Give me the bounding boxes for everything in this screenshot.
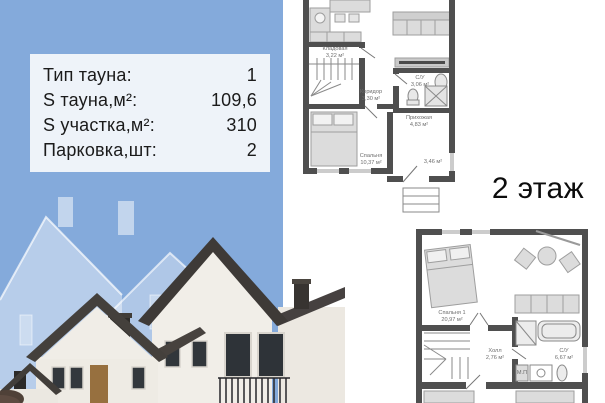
chair	[349, 14, 359, 22]
room-label-kladovaya: Кладовая3,22 м²	[322, 45, 347, 58]
bed	[425, 245, 478, 308]
toilet-tank	[407, 100, 419, 105]
info-row-lot-area: S участка,м²: 310	[43, 113, 257, 138]
entry-steps	[403, 188, 439, 212]
info-value: 109,6	[211, 88, 257, 113]
bed-partial	[516, 391, 574, 403]
floor1-plan: Кладовая3,22 м² Коридор3,30 м² С/У3,06 м…	[303, 0, 455, 216]
room-label-mp: М.П	[517, 369, 527, 376]
info-label: S тауна,м²:	[43, 88, 137, 113]
info-value: 1	[247, 63, 257, 88]
stairs-floor2	[424, 333, 470, 379]
room-label-su-floor2: С/У6,67 м²	[555, 347, 573, 360]
chair	[515, 248, 536, 269]
room-label-koridor: Коридор3,30 м²	[360, 88, 382, 101]
tv-icon	[399, 61, 445, 64]
room-label-holl: Холл2,76 м²	[486, 347, 504, 360]
window	[192, 341, 207, 367]
chimney-icon	[294, 281, 309, 309]
window	[70, 367, 83, 389]
toilet-icon	[557, 365, 567, 381]
floor1-plan-drawing	[303, 0, 455, 216]
chair	[559, 252, 580, 273]
townhouse-listing-card: Тип тауна: 1 S тауна,м²: 109,6 S участка…	[0, 0, 605, 403]
room-label-su-floor1: С/У3,06 м²	[411, 74, 429, 87]
room-label-prihozhaya: Прихожая4,83 м²	[406, 114, 432, 127]
room-label-porch: 3,46 м²	[424, 158, 442, 165]
info-label: Тип тауна:	[43, 63, 132, 88]
round-table	[538, 247, 556, 265]
pillow	[334, 114, 353, 125]
room-label-spalnya: Спальня10,37 м²	[360, 152, 383, 165]
info-value: 310	[226, 113, 257, 138]
info-label: Парковка,шт:	[43, 138, 157, 163]
info-label: S участка,м²:	[43, 113, 155, 138]
pillow	[313, 114, 332, 125]
floor2-plan: Спальня 120,97 м² Холл2,76 м² С/У6,67 м²…	[416, 229, 588, 403]
info-table: Тип тауна: 1 S тауна,м²: 109,6 S участка…	[30, 54, 270, 172]
info-row-type: Тип тауна: 1	[43, 63, 257, 88]
chimney-cap	[292, 279, 311, 284]
window	[258, 333, 284, 377]
floor2-heading: 2 этаж	[472, 172, 604, 206]
info-row-house-area: S тауна,м²: 109,6	[43, 88, 257, 113]
window	[132, 367, 145, 389]
kitchen-counter-lower	[310, 32, 361, 42]
window	[225, 333, 251, 377]
stairs-floor1	[309, 58, 359, 96]
bed-partial	[424, 391, 474, 403]
townhouse-photo	[0, 195, 345, 403]
chair	[335, 14, 345, 22]
washing-machine-icon	[530, 365, 552, 381]
info-value: 2	[247, 138, 257, 163]
info-row-parking: Парковка,шт: 2	[43, 138, 257, 163]
entry-door	[90, 365, 108, 403]
room-label-spalnya1: Спальня 120,97 м²	[438, 309, 465, 322]
sink-icon	[315, 13, 325, 23]
dining-table	[330, 0, 370, 12]
